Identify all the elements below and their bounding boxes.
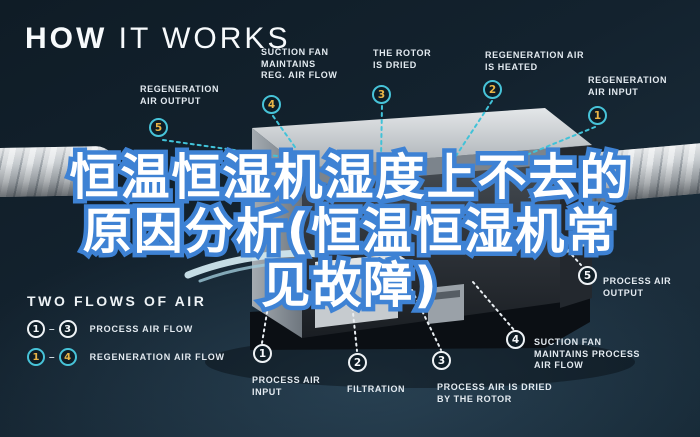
headline-line-3-fill: 见故障) <box>0 259 700 313</box>
badge-2-regen-heated: 2 <box>483 80 502 99</box>
badge-3-process-dried: 3 <box>432 351 451 370</box>
legend-dash: – <box>49 324 55 335</box>
page-title: HOW IT WORKS <box>25 22 290 56</box>
badge-4-suction-fan-reg: 4 <box>262 95 281 114</box>
legend-badge-1-teal: 1 <box>27 348 45 366</box>
label-process-input: PROCESS AIR INPUT <box>252 375 320 398</box>
legend-label-regen: REGENERATION AIR FLOW <box>90 352 225 362</box>
line-suction-reg <box>273 116 297 150</box>
headline-line-2-fill: 原因分析(恒温恒湿机常 <box>0 205 700 259</box>
label-suction-fan-process: SUCTION FAN MAINTAINS PROCESS AIR FLOW <box>534 337 640 372</box>
label-suction-fan-reg: SUCTION FAN MAINTAINS REG. AIR FLOW <box>261 47 337 82</box>
legend-badge-3-white: 3 <box>59 320 77 338</box>
badge-1-process-input: 1 <box>253 344 272 363</box>
badge-4-suction-fan-process: 4 <box>506 330 525 349</box>
headline-line-1-fill: 恒温恒湿机湿度上不去的 <box>0 151 700 205</box>
label-regen-input: REGENERATION AIR INPUT <box>588 75 667 98</box>
label-regen-heated: REGENERATION AIR IS HEATED <box>485 50 584 73</box>
badge-1-regen-input: 1 <box>588 106 607 125</box>
legend-dash: – <box>49 352 55 363</box>
legend-label-process: PROCESS AIR FLOW <box>90 324 193 334</box>
title-how: HOW <box>25 22 107 55</box>
headline-line-1: 恒温恒湿机湿度上不去的 恒温恒湿机湿度上不去的 <box>0 151 700 205</box>
headline-line-3: 见故障) 见故障) <box>0 259 700 313</box>
legend-row-process: 1 – 3 PROCESS AIR FLOW <box>27 320 225 338</box>
headline-line-2: 原因分析(恒温恒湿机常 原因分析(恒温恒湿机常 <box>0 205 700 259</box>
badge-3-rotor-dried: 3 <box>372 85 391 104</box>
legend-badge-4-teal: 4 <box>59 348 77 366</box>
badge-5-regen-output: 5 <box>149 118 168 137</box>
label-regen-output: REGENERATION AIR OUTPUT <box>140 84 219 107</box>
chinese-headline: 恒温恒湿机湿度上不去的 恒温恒湿机湿度上不去的 原因分析(恒温恒湿机常 原因分析… <box>0 151 700 313</box>
infographic-canvas: HOW IT WORKS <box>0 0 700 437</box>
label-rotor-dried: THE ROTOR IS DRIED <box>373 48 431 71</box>
legend-row-regen: 1 – 4 REGENERATION AIR FLOW <box>27 348 225 366</box>
legend-badge-1-white: 1 <box>27 320 45 338</box>
label-process-dried: PROCESS AIR IS DRIED BY THE ROTOR <box>437 382 552 405</box>
badge-2-filtration: 2 <box>348 353 367 372</box>
label-filtration: FILTRATION <box>347 384 405 396</box>
